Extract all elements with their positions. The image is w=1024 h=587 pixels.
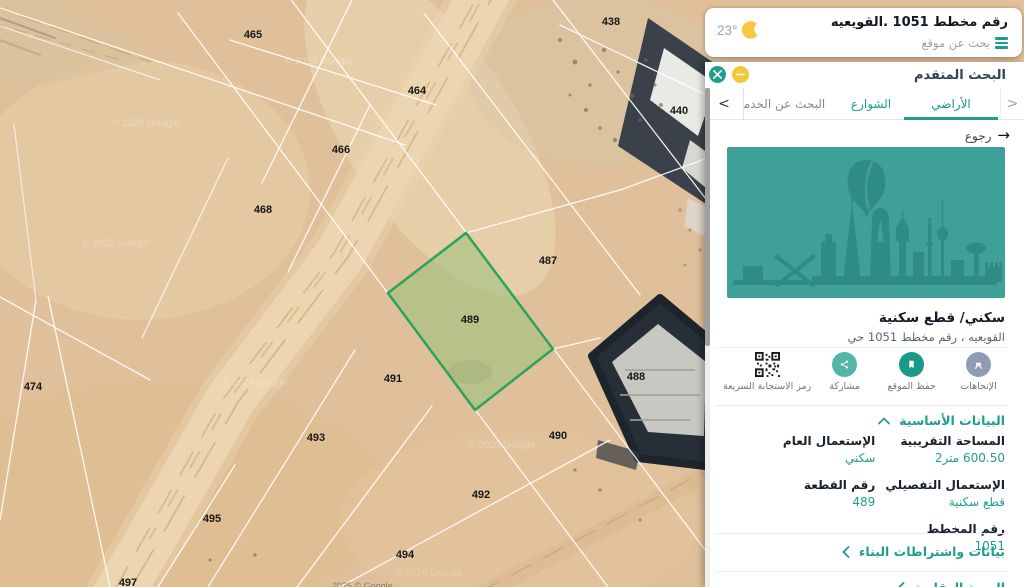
parcel-label-494: 494 — [396, 549, 415, 561]
share-icon — [832, 352, 857, 377]
search-input[interactable]: بحث عن موقع — [921, 36, 1008, 50]
tab-bar: > الأراضي الشوارع البحث عن الخدمات < — [705, 88, 1024, 120]
parcel-label-493: 493 — [307, 432, 325, 444]
svg-text:© 2026 Google: © 2026 Google — [112, 118, 180, 129]
search-placeholder: بحث عن موقع — [921, 36, 990, 50]
listing-subtitle: ⁧حي⁩ 1051 ⁧مخطط⁩ ⁧رقم⁩ ، ⁧القويعيه⁩ — [848, 330, 1005, 344]
listing-title: سكني/ قطع سكنية — [879, 310, 1005, 326]
svg-text:© 2026 Google: © 2026 Google — [82, 238, 150, 249]
back-arrow-icon: → — [997, 128, 1010, 143]
parcel-label-474: 474 — [24, 381, 43, 393]
parcel-label-490: 490 — [549, 430, 567, 442]
qr-code-icon — [755, 352, 780, 377]
bookmark-icon — [899, 352, 924, 377]
divider — [715, 405, 1008, 406]
divider — [715, 533, 1008, 534]
crescent-moon-icon — [739, 19, 761, 41]
svg-text:© 2026 Google: © 2026 Google — [468, 440, 536, 451]
qr-code-button[interactable]: رمز الاستجابة السريعة — [723, 352, 811, 402]
building-requirements-section-header[interactable]: بيانات واشتراطات البناء — [842, 544, 1005, 559]
svg-text:© 2026 Google: © 2026 Google — [222, 378, 290, 389]
directions-button[interactable]: الإتجاهات — [945, 352, 1012, 402]
minimize-icon[interactable] — [732, 66, 749, 83]
parcel-label-491: 491 — [384, 373, 402, 385]
temperature-label: 23° — [717, 23, 737, 38]
divider — [715, 347, 1008, 348]
parcel-label-489: 489 — [461, 314, 479, 326]
share-button[interactable]: مشاركة — [811, 352, 878, 402]
divider — [715, 571, 1008, 572]
tabs-scroll-right-chevron-icon[interactable]: > — [1000, 88, 1024, 119]
field-approx-area: المساحة التقريبية 600.50 متر2 — [875, 434, 1005, 465]
advanced-search-panel: البحث المتقدم > الأراضي الشوارع البحث عن… — [705, 62, 1024, 587]
tab-lands[interactable]: الأراضي — [904, 88, 998, 119]
panel-scrollbar[interactable] — [705, 88, 710, 587]
save-location-button[interactable]: حفظ الموقع — [878, 352, 945, 402]
basic-data-section-header[interactable]: البيانات الأساسية — [878, 413, 1005, 428]
chevron-left-icon — [842, 546, 850, 558]
basic-data-fields: المساحة التقريبية 600.50 متر2 الإستعمال … — [729, 434, 1005, 553]
field-parcel-number: رقم القطعة 489 — [729, 478, 875, 509]
plan-title: ⁧القويعيه⁩. 1051 ⁧مخطط⁩ ⁧رقم⁩ — [831, 15, 1008, 30]
chevron-left-icon — [897, 582, 905, 587]
parcel-label-465: 465 — [244, 29, 262, 41]
svg-text:© 2026 Google: © 2026 Google — [285, 56, 353, 67]
listing-placeholder-image — [727, 147, 1005, 298]
parcel-terrain-mark — [448, 360, 492, 384]
close-icon[interactable] — [709, 66, 726, 83]
parcel-label-464: 464 — [408, 85, 427, 97]
parcel-label-495: 495 — [203, 513, 221, 525]
svg-text:© 2026 Google: © 2026 Google — [395, 568, 463, 579]
parcel-label-487: 487 — [539, 255, 557, 267]
chevron-up-icon — [878, 417, 890, 425]
field-detailed-use: الإستعمال التفصيلي قطع سكنية — [875, 478, 1005, 509]
parcel-label-488: 488 — [627, 371, 645, 383]
menu-icon[interactable] — [995, 37, 1008, 48]
parcel-label-468: 468 — [254, 204, 272, 216]
property-identity-section-header[interactable]: الهوية العقارية — [897, 580, 1005, 587]
location-title-card: ⁧القويعيه⁩. 1051 ⁧مخطط⁩ ⁧رقم⁩ بحث عن موق… — [705, 8, 1022, 57]
parcel-label-492: 492 — [472, 489, 490, 501]
tab-streets[interactable]: الشوارع — [840, 88, 902, 119]
scrollbar-thumb[interactable] — [705, 88, 710, 346]
weather-widget: 23° — [717, 19, 761, 41]
panel-title: البحث المتقدم — [914, 68, 1006, 83]
active-tab-underline — [904, 117, 998, 120]
parcel-label-438: 438 — [602, 16, 620, 28]
directions-icon — [966, 352, 991, 377]
actions-row: الإتجاهات حفظ الموقع مشاركة — [723, 352, 1012, 402]
parcel-label-466: 466 — [332, 144, 350, 156]
parcel-label-440: 440 — [670, 105, 688, 117]
tabs-scroll-left-chevron-icon[interactable]: < — [705, 88, 744, 119]
back-button[interactable]: رجوع → — [965, 128, 1010, 143]
field-general-use: الإستعمال العام سكني — [729, 434, 875, 465]
map-attribution: 2025 © Google — [332, 581, 393, 587]
parcel-label-497: 497 — [119, 577, 137, 587]
